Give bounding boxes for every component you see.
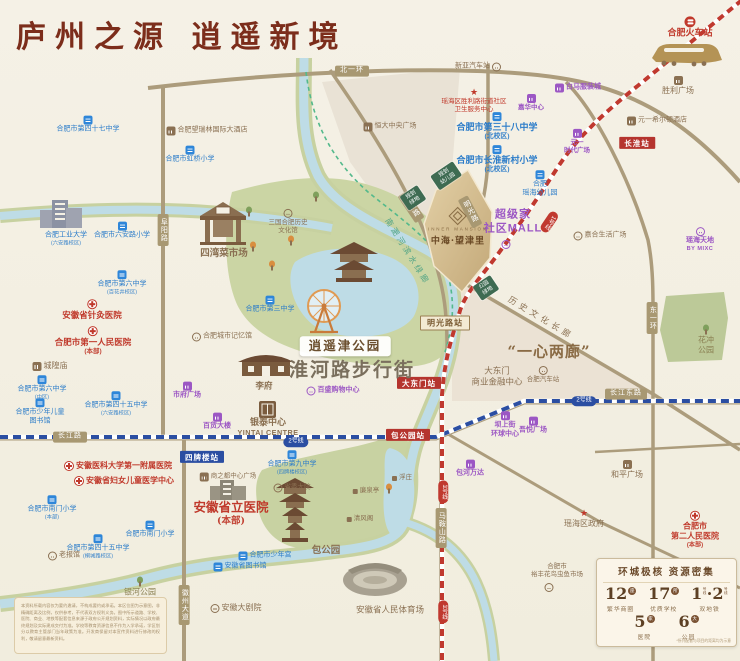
sch-label: 合肥市第四十五中学(六安路校区) <box>85 391 148 416</box>
tree-icon <box>136 577 144 587</box>
circle-icon <box>284 209 293 218</box>
brn-label: 清风阁 <box>347 515 374 523</box>
sch-label: 合肥市六安路小学 <box>94 222 150 241</box>
planned-green: 规划绿地 <box>399 185 426 211</box>
mal-label: 瑶海天地BY MIXC <box>686 227 714 253</box>
map-label <box>287 236 295 247</box>
brn-label: 元一希尔顿酒店 <box>627 117 687 126</box>
treegold-icon <box>249 242 257 252</box>
map-label <box>502 240 511 250</box>
brn-label: 胜利广场 <box>662 76 694 96</box>
cross-icon <box>64 461 74 471</box>
road-fuyanglu: 阜阳路 <box>158 214 169 246</box>
mallp-icon <box>573 129 582 138</box>
sch-label: 合肥瑶海幼儿园 <box>523 170 558 198</box>
metro-line2-badge: 2号线 <box>571 396 596 406</box>
mallb-icon <box>167 127 176 136</box>
station-sipailou: 四牌楼站 <box>180 451 224 463</box>
sch-label: 合肥市第四十七中学 <box>57 116 120 135</box>
pk-label: 花冲公园 <box>698 325 714 356</box>
circle-icon <box>274 484 283 493</box>
mallb-icon <box>627 117 636 126</box>
hos-label: 安徽省立医院(本部) <box>193 499 268 527</box>
brn-label: 浮庄 <box>392 474 412 482</box>
mal-label: 百盛购物中心 <box>307 387 360 396</box>
brn-label: 城隍庙 <box>33 361 68 371</box>
road-huizhoudadao: 徽州大道 <box>179 585 190 625</box>
map-label <box>312 192 320 203</box>
station-changhuai: 长淮站 <box>619 137 655 149</box>
mallp-icon <box>501 411 510 420</box>
tree-icon <box>312 192 320 202</box>
map-label <box>385 484 393 495</box>
stats-note: *所列配套与项目的距离均为示意 <box>676 639 731 644</box>
stat-item: 17所优质学校 <box>648 586 679 613</box>
sch-label: 合肥市第三中学 <box>246 296 295 315</box>
road-beiyihuan: 北一环 <box>335 66 369 77</box>
brn-label: 恒大中央广场 <box>364 123 417 132</box>
school-icon <box>112 391 121 400</box>
hos-label: 安徽医科大学第一附属医院 <box>64 461 172 471</box>
disclaimer-box: 本资料所载内容仅为要约邀请，不构成要约或承诺。本区位图为示意图，非精确距离及比例… <box>14 597 167 654</box>
mallp-icon <box>213 413 222 422</box>
stat-item: 5家医院 <box>634 614 654 641</box>
school-icon <box>84 116 93 125</box>
station-mingguanglu: 明光路站 <box>420 316 470 331</box>
tree-icon <box>702 325 710 335</box>
brn-label: 老报馆 <box>48 552 80 561</box>
circle-icon <box>192 333 201 342</box>
hos-label: 合肥市第二人民医院(本部) <box>671 511 719 550</box>
mallb-icon <box>33 362 42 371</box>
sch-label: 合肥工业大学(六安路校区) <box>45 231 87 246</box>
map-canvas: 庐州之源 逍遥新境 北一环长江路长江东路阜阳路东一环徽州大道马鞍山路滁州路明光路… <box>0 0 740 661</box>
xiaoyaojin-park-badge: 逍遥津公园 <box>300 336 391 356</box>
mallb-icon <box>623 460 632 469</box>
sch-label: 合肥市虹桥小学 <box>166 146 215 165</box>
road-changjianglu: 长江路 <box>53 432 87 443</box>
mallb-icon <box>674 76 683 85</box>
school-icon <box>36 398 45 407</box>
mal-label: 吾悦广场 <box>519 417 547 436</box>
sch-label: 合肥市第六中学(百花井校区) <box>98 270 147 295</box>
brn-label: 和平广场 <box>611 460 643 480</box>
road-dongyihuan: 东一环 <box>647 302 658 334</box>
stat-item: 12座繁华商圈 <box>605 586 636 613</box>
stats-title: 环城极核 资源密集 <box>603 559 730 583</box>
road-maanshanlu: 马鞍山路 <box>436 508 447 548</box>
circle-icon <box>492 63 501 72</box>
rail-icon <box>684 16 695 27</box>
school-icon <box>38 375 47 384</box>
circlep-icon <box>502 240 511 249</box>
school-icon <box>214 563 223 572</box>
brn-label: 合肥望瑞林国际大酒店 <box>167 127 248 136</box>
sch-label: 合肥市第三十八中学(北校区) <box>456 112 537 142</box>
school-icon <box>94 534 103 543</box>
stats-row-2: 5家医院6大公园 <box>597 614 736 641</box>
brn-label: 三国合肥历史文化馆 <box>269 209 308 235</box>
road-changjiangdonglu: 长江东路 <box>605 389 647 400</box>
mal-label: 嘉华中心 <box>518 94 544 112</box>
stats-row-1: 12座繁华商圈17所优质学校1号线·2号线双地铁 <box>597 586 736 613</box>
sch-label: 合肥市南门小学(本部) <box>28 495 77 520</box>
sch-label: 合肥市南门小学 <box>126 521 175 540</box>
circle-icon <box>545 583 554 592</box>
one-heart-two-corridors: “一心两廊” <box>507 343 590 362</box>
mal-label: 包河万达 <box>456 460 484 479</box>
school-icon <box>492 145 501 154</box>
metro-line2-badge: 2号线 <box>283 437 308 447</box>
metro-line1-badge: 1号线 <box>438 480 448 503</box>
park-green: 公园绿地 <box>472 275 499 301</box>
hos-label: ★瑶海区胜利路街道社区卫生服务中心 <box>442 88 507 114</box>
huaihe-road-pedestrian-street: 淮河路步行街 <box>289 359 415 383</box>
metro-line1-badge: 1号线 <box>438 600 448 623</box>
mallb-icon <box>200 473 209 482</box>
circle-icon <box>211 604 220 613</box>
brn-label: 李府 <box>255 381 272 392</box>
school-icon <box>288 450 297 459</box>
hos-label: 安徽省针灸医院 <box>62 299 122 321</box>
school-icon <box>118 222 127 231</box>
brn-label: 嘉合生活广场 <box>574 232 627 241</box>
sch-label: 合肥市第六中学(中区) <box>18 375 67 400</box>
mal-label: 市府广场 <box>173 382 201 401</box>
circlep-icon <box>696 227 705 236</box>
map-label <box>545 583 554 593</box>
circlep-icon <box>307 387 316 396</box>
map-label <box>249 242 257 253</box>
stats-card: 环城极核 资源密集 12座繁华商圈17所优质学校1号线·2号线双地铁 5家医院6… <box>596 558 737 647</box>
school-icon <box>536 170 545 179</box>
station-baogongyuan: 包公园站 <box>386 429 430 441</box>
dot-icon <box>353 489 358 494</box>
hefei-railway-station: 合肥火车站 <box>667 16 712 39</box>
mallb-icon <box>364 123 373 132</box>
dot-icon <box>392 476 397 481</box>
brn-label: 廉泉亭 <box>353 487 380 495</box>
mal-label: 坝上街环球中心 <box>491 411 519 439</box>
circle-icon <box>539 366 548 375</box>
hos-label: 安徽省妇女儿童医学中心 <box>74 476 174 486</box>
star-icon: ★ <box>470 88 478 97</box>
mallp-icon <box>529 417 538 426</box>
mal-label: 白马服装城 <box>555 84 601 93</box>
map-label <box>268 261 276 272</box>
school-icon <box>186 146 195 155</box>
school-icon <box>118 270 127 279</box>
star-icon: ★ <box>580 509 588 518</box>
sch-label: 安徽省图书馆 <box>214 563 267 572</box>
mal-label: 元一时代广场 <box>564 129 590 155</box>
brn-label: 安徽大剧院 <box>211 603 262 613</box>
sch-label: 合肥市少年儿童图书馆 <box>16 398 65 426</box>
cross-icon <box>88 326 98 336</box>
mallp-icon <box>527 94 536 103</box>
treegold-icon <box>268 261 276 271</box>
pk-label: 银河公园 <box>124 577 156 598</box>
page-title: 庐州之源 逍遥新境 <box>16 12 347 56</box>
tree-icon <box>245 207 253 217</box>
brn-label: 新亚汽车站 <box>455 63 501 72</box>
brn-label: 银泰中心YINTAI CENTRE <box>237 417 298 437</box>
school-icon <box>266 296 275 305</box>
project-ornament-icon <box>449 207 467 225</box>
stat-item: 6大公园 <box>679 614 699 641</box>
project-name-cn: 中海·望津里 <box>431 234 485 247</box>
school-icon <box>146 521 155 530</box>
circle-icon <box>48 552 57 561</box>
project-name-en: INNER MANSION <box>428 227 488 232</box>
brn-label: ★瑶海区政府 <box>564 509 604 529</box>
school-icon <box>239 552 248 561</box>
school-icon <box>48 495 57 504</box>
treegold-icon <box>385 484 393 494</box>
brn-label: 包公园 <box>312 545 341 557</box>
mallp-icon <box>466 460 475 469</box>
brn-label: 商之都中心广场 <box>200 473 257 482</box>
brn-label: 省委大院 <box>274 484 311 493</box>
brn-label: 合肥市裕丰花鸟虫鱼市场 <box>531 563 583 579</box>
brn-label: 合肥城市记忆馆 <box>192 333 252 342</box>
stat-item: 1号线·2号线双地铁 <box>691 586 728 613</box>
mallp-icon <box>555 84 564 93</box>
brn-label: 四湾菜市场 <box>200 248 248 260</box>
map-label <box>245 207 253 218</box>
cor-brown-label: 历史文化长廊 <box>506 294 576 342</box>
sch-label: 合肥市第九中学(四牌楼校区) <box>268 450 317 475</box>
brn-label: 合肥汽车站 <box>527 366 560 384</box>
hos-label: 合肥市第一人民医院(本部) <box>55 326 132 356</box>
mal-label: 超级家社区MALL <box>484 208 543 236</box>
treegold-icon <box>287 236 295 246</box>
brn-label: 安徽省人民体育场 <box>356 605 424 616</box>
circle-icon <box>574 232 583 241</box>
cross-icon <box>690 511 700 521</box>
mal-label: 百货大楼 <box>203 413 231 432</box>
cross-icon <box>87 299 97 309</box>
cor-green-label: 南淝河滨水绿廊 <box>382 217 431 288</box>
mallp-icon <box>183 382 192 391</box>
cross-icon <box>74 476 84 486</box>
brn-label: 大东门商业金融中心 <box>471 365 522 386</box>
sch-label: 合肥市少年宫 <box>239 552 292 561</box>
project-logo: INNER MANSION 中海·望津里 <box>428 210 488 247</box>
dot-icon <box>347 517 352 522</box>
